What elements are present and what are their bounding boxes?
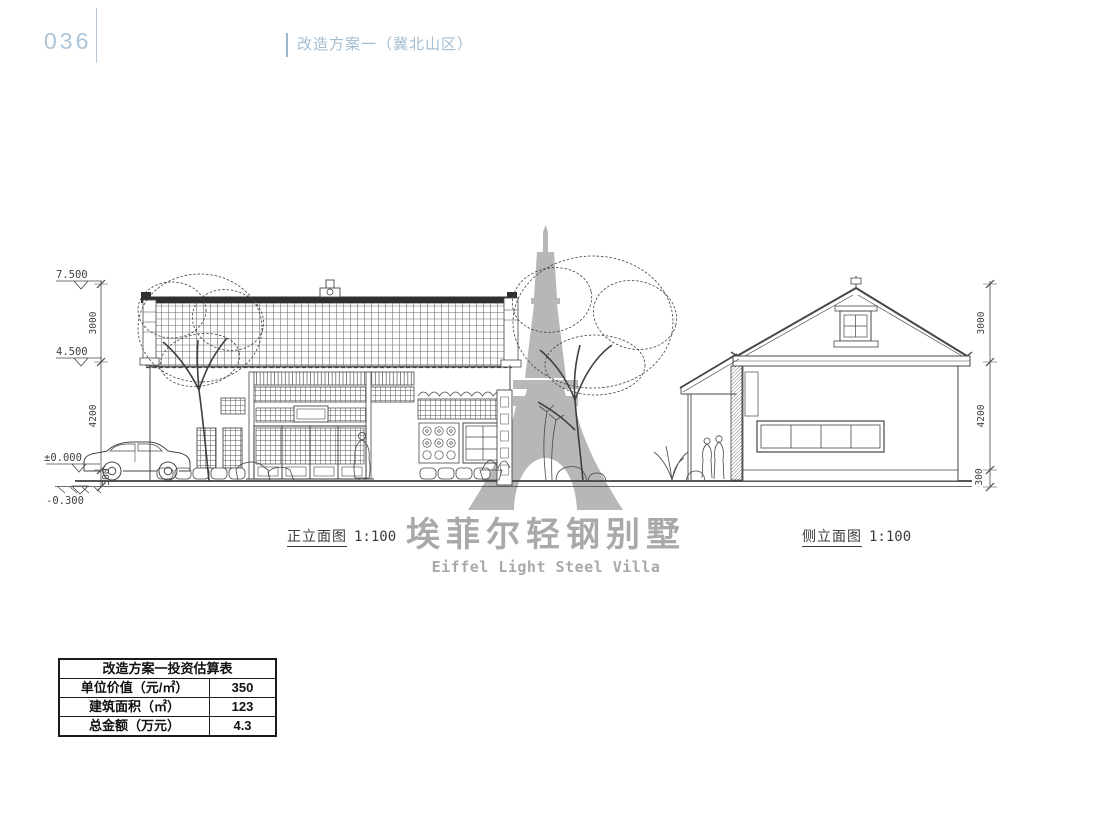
side-strip-window [757, 421, 884, 452]
level-ground: -0.300 [46, 495, 84, 507]
row-value: 123 [210, 698, 276, 717]
dim-left-300: 300 [101, 468, 112, 485]
investment-table: 改造方案一投资估算表 单位价值（元/㎡） 350 建筑面积（㎡） 123 总金额… [58, 658, 277, 737]
table-row: 单位价值（元/㎡） 350 [59, 679, 276, 698]
dim-left-3000: 3000 [88, 311, 99, 334]
row-value: 350 [210, 679, 276, 698]
roof-finial-icon [851, 278, 861, 284]
signboard [497, 390, 512, 485]
watermark-text: 埃菲尔轻钢别墅 Eiffel Light Steel Villa [400, 518, 692, 576]
side-elevation-scale: 1:100 [869, 529, 911, 545]
gable-window [834, 306, 878, 347]
front-elevation-scale: 1:100 [354, 529, 396, 545]
side-elevation-title: 侧立面图 [802, 528, 862, 547]
table-row: 总金额（万元） 4.3 [59, 717, 276, 737]
porch-person-figures [702, 436, 724, 479]
front-elevation-label: 正立面图1:100 [287, 526, 396, 546]
table-title-row: 改造方案一投资估算表 [59, 659, 276, 679]
ridge-ornament-icon [320, 280, 340, 297]
row-label: 总金额（万元） [59, 717, 210, 737]
dim-right-3000: 3000 [976, 311, 987, 334]
level-eave: 4.500 [56, 346, 88, 358]
side-wall [733, 356, 970, 481]
door-plaque [294, 406, 328, 422]
level-roof-top: 7.500 [56, 269, 88, 281]
watermark-brand-cn: 埃菲尔轻钢别墅 [400, 518, 692, 554]
dim-left-4200: 4200 [88, 404, 99, 427]
table-row: 建筑面积（㎡） 123 [59, 698, 276, 717]
front-elevation-title: 正立面图 [287, 528, 347, 547]
car [84, 442, 190, 480]
dim-right-4200: 4200 [976, 404, 987, 427]
side-elevation-label: 侧立面图1:100 [802, 526, 911, 546]
row-label: 建筑面积（㎡） [59, 698, 210, 717]
side-elevation-drawing [680, 276, 972, 481]
document-page: 036 改造方案一（冀北山区） [0, 0, 1101, 817]
row-value: 4.3 [210, 717, 276, 737]
table-title: 改造方案一投资估算表 [59, 659, 276, 679]
front-elevation-drawing [140, 280, 521, 485]
row-label: 单位价值（元/㎡） [59, 679, 210, 698]
watermark-brand-en: Eiffel Light Steel Villa [400, 558, 692, 576]
level-zero: ±0.000 [44, 452, 82, 464]
dim-right-300: 300 [974, 468, 985, 485]
stone-base [157, 468, 490, 479]
